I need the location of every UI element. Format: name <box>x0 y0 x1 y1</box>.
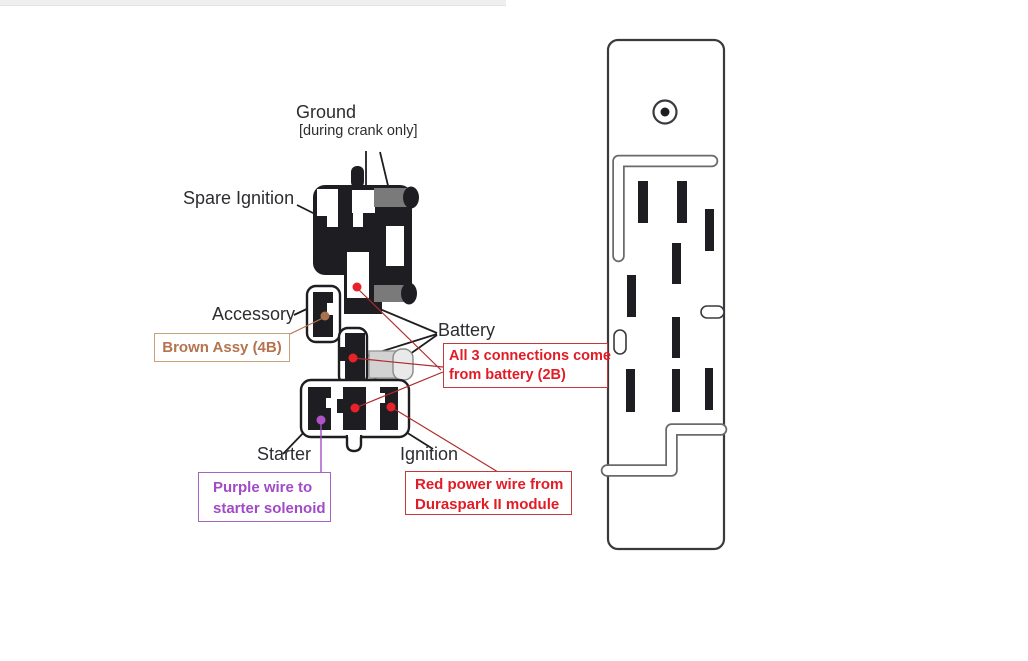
pin-slot <box>705 209 714 251</box>
label-battery: Battery <box>438 321 495 341</box>
terminal-dot-battery-1 <box>353 283 362 292</box>
gray-terminal-mid <box>374 283 417 305</box>
terminal-dot-ignition <box>387 403 396 412</box>
label-ground-sub: [during crank only] <box>299 124 417 140</box>
bottom-plug <box>301 380 409 451</box>
oval-slot-left <box>614 330 626 354</box>
note-text-line: All 3 connections come <box>449 347 607 366</box>
keyway-slot <box>352 190 375 213</box>
gray-terminal-top <box>374 187 419 209</box>
note-text-line: Red power wire from <box>415 475 571 495</box>
pin-slot <box>626 369 635 412</box>
terminal-dot-battery-2 <box>349 354 358 363</box>
terminal-dot-battery-3 <box>351 404 360 413</box>
label-spare-ignition: Spare Ignition <box>183 189 294 209</box>
light-gray-terminal <box>369 349 413 380</box>
ignition-switch-diagram <box>0 0 1028 661</box>
terminal-dot-starter <box>317 416 326 425</box>
oval-slot-right <box>701 306 724 318</box>
pin-slot <box>627 275 636 317</box>
wiring-diagram-page: Ground [during crank only] Spare Ignitio… <box>0 0 1028 661</box>
note-brown-assy: Brown Assy (4B) <box>154 333 290 362</box>
label-starter: Starter <box>257 445 311 465</box>
terminal-dot-accessory <box>321 312 330 321</box>
note-text-line: starter solenoid <box>213 498 330 519</box>
pin-notch <box>326 398 332 408</box>
note-battery-connections: All 3 connections come from battery (2B) <box>443 343 608 388</box>
note-text-line: from battery (2B) <box>449 366 607 385</box>
pin-slot <box>672 369 680 412</box>
note-red-power-wire: Red power wire from Duraspark II module <box>405 471 572 515</box>
mounting-hole-icon <box>654 101 677 124</box>
terminal-cap <box>401 283 417 305</box>
hole-center <box>661 108 670 117</box>
pin-slot <box>638 181 648 223</box>
note-purple-wire: Purple wire to starter solenoid <box>198 472 331 522</box>
keyway-slot <box>353 213 363 227</box>
label-accessory: Accessory <box>212 305 295 325</box>
label-ignition: Ignition <box>400 445 458 465</box>
connector-face <box>607 40 724 549</box>
pin-tab <box>338 347 345 361</box>
terminal-cap <box>393 349 413 380</box>
ground-terminal-stub <box>351 166 364 188</box>
pin-tab <box>337 399 344 413</box>
keyway-slot <box>317 189 338 216</box>
terminal-cap <box>403 187 419 209</box>
pin-slot <box>672 317 680 358</box>
keyway-slot <box>386 226 404 266</box>
keyway-slot <box>327 216 338 227</box>
note-text-line: Duraspark II module <box>415 495 571 515</box>
note-text-line: Purple wire to <box>213 477 330 498</box>
pin-slot <box>677 181 687 223</box>
pin-slot <box>672 243 681 284</box>
plug-index-tab <box>347 435 361 451</box>
label-ground: Ground <box>296 103 356 123</box>
pin-slot <box>705 368 713 410</box>
note-text: Brown Assy (4B) <box>162 339 281 356</box>
tab-junction <box>348 432 360 437</box>
